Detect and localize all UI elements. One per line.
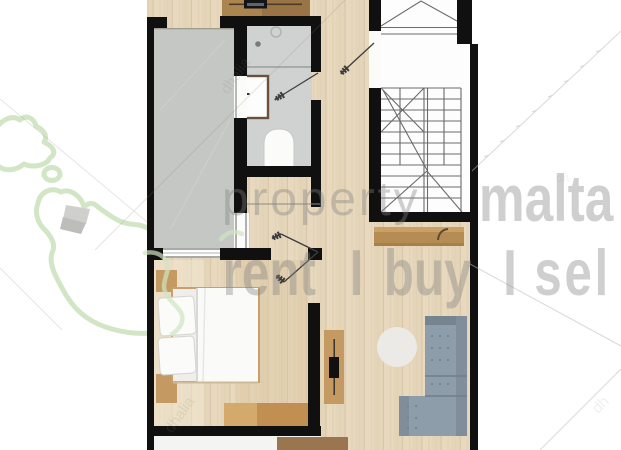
- svg-text:buy: buy: [384, 238, 472, 310]
- svg-text:malta: malta: [479, 161, 614, 236]
- svg-text:rent: rent: [223, 238, 316, 310]
- svg-text:sel: sel: [534, 238, 611, 310]
- svg-text:I: I: [350, 238, 364, 310]
- svg-text:property: property: [222, 173, 421, 226]
- svg-text:I: I: [503, 238, 517, 310]
